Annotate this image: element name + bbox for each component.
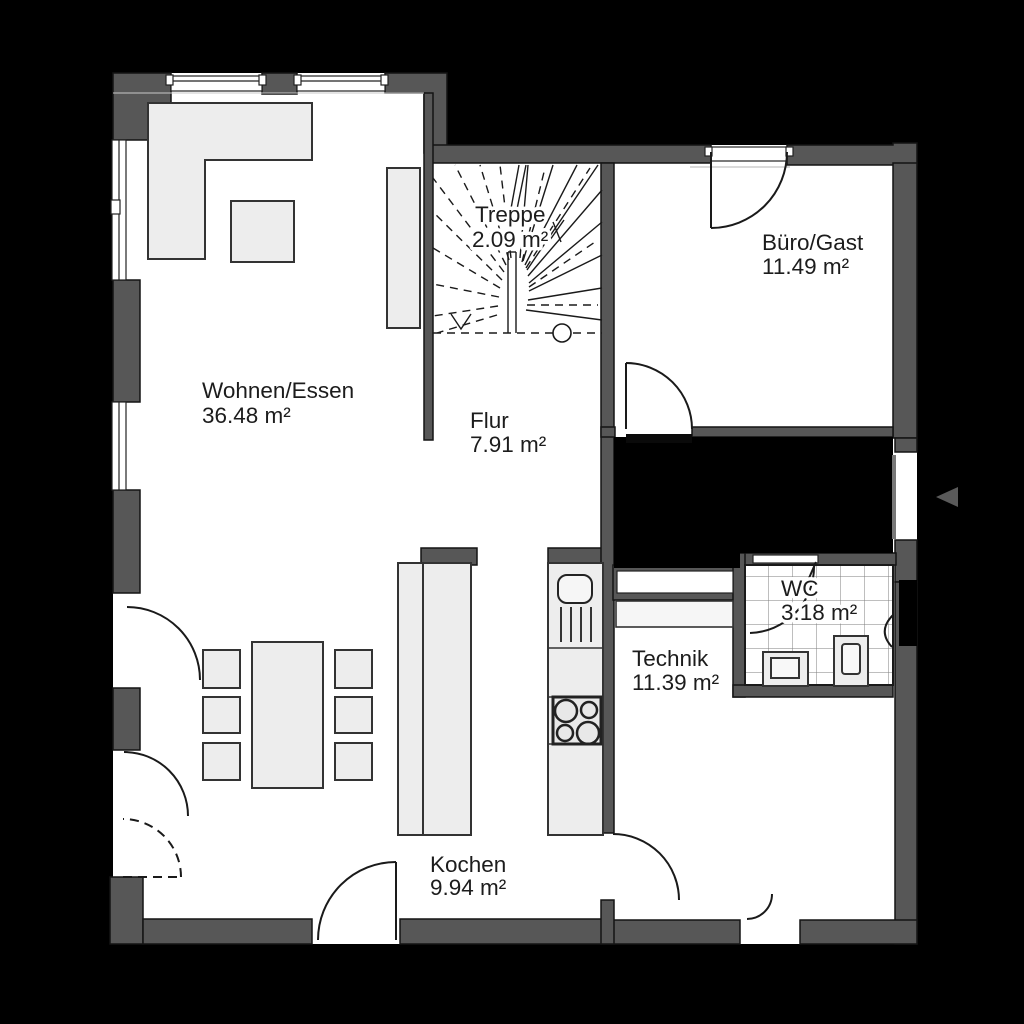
technik-furniture (616, 601, 733, 627)
entrance-niche (614, 434, 894, 568)
chair (335, 743, 372, 780)
chair (203, 650, 240, 688)
room-area-wc: 3.18 m² (781, 600, 858, 625)
floorplan-svg: Wohnen/Essen 36.48 m² Treppe 2.09 m² Flu… (0, 0, 1024, 1024)
room-label-wohnen: Wohnen/Essen (202, 378, 354, 403)
chair (335, 697, 372, 733)
dining-furniture (203, 642, 372, 788)
room-area-buero: 11.49 m² (762, 254, 850, 279)
chair (203, 697, 240, 733)
floorplan-canvas: Wohnen/Essen 36.48 m² Treppe 2.09 m² Flu… (0, 0, 1024, 1024)
kitchen-sink (558, 575, 592, 603)
technik-radiator (616, 601, 733, 627)
dining-table (252, 642, 323, 788)
room-label-wc: WC (781, 576, 819, 601)
room-area-wohnen: 36.48 m² (202, 403, 291, 428)
room-area-flur: 7.91 m² (470, 432, 547, 457)
room-area-treppe: 2.09 m² (472, 227, 549, 252)
stair-post (553, 324, 571, 342)
entrance-arrow-icon (936, 487, 958, 507)
room-label-flur: Flur (470, 408, 509, 433)
room-label-treppe: Treppe (475, 202, 545, 227)
coffee-table (231, 201, 294, 262)
room-label-buero: Büro/Gast (762, 230, 864, 255)
chair (335, 650, 372, 688)
room-label-kochen: Kochen (430, 852, 506, 877)
sideboard (387, 168, 420, 328)
room-label-technik: Technik (632, 646, 709, 671)
chair (203, 743, 240, 780)
room-area-kochen: 9.94 m² (430, 875, 507, 900)
kitchen-island (398, 563, 471, 835)
room-area-technik: 11.39 m² (632, 670, 720, 695)
